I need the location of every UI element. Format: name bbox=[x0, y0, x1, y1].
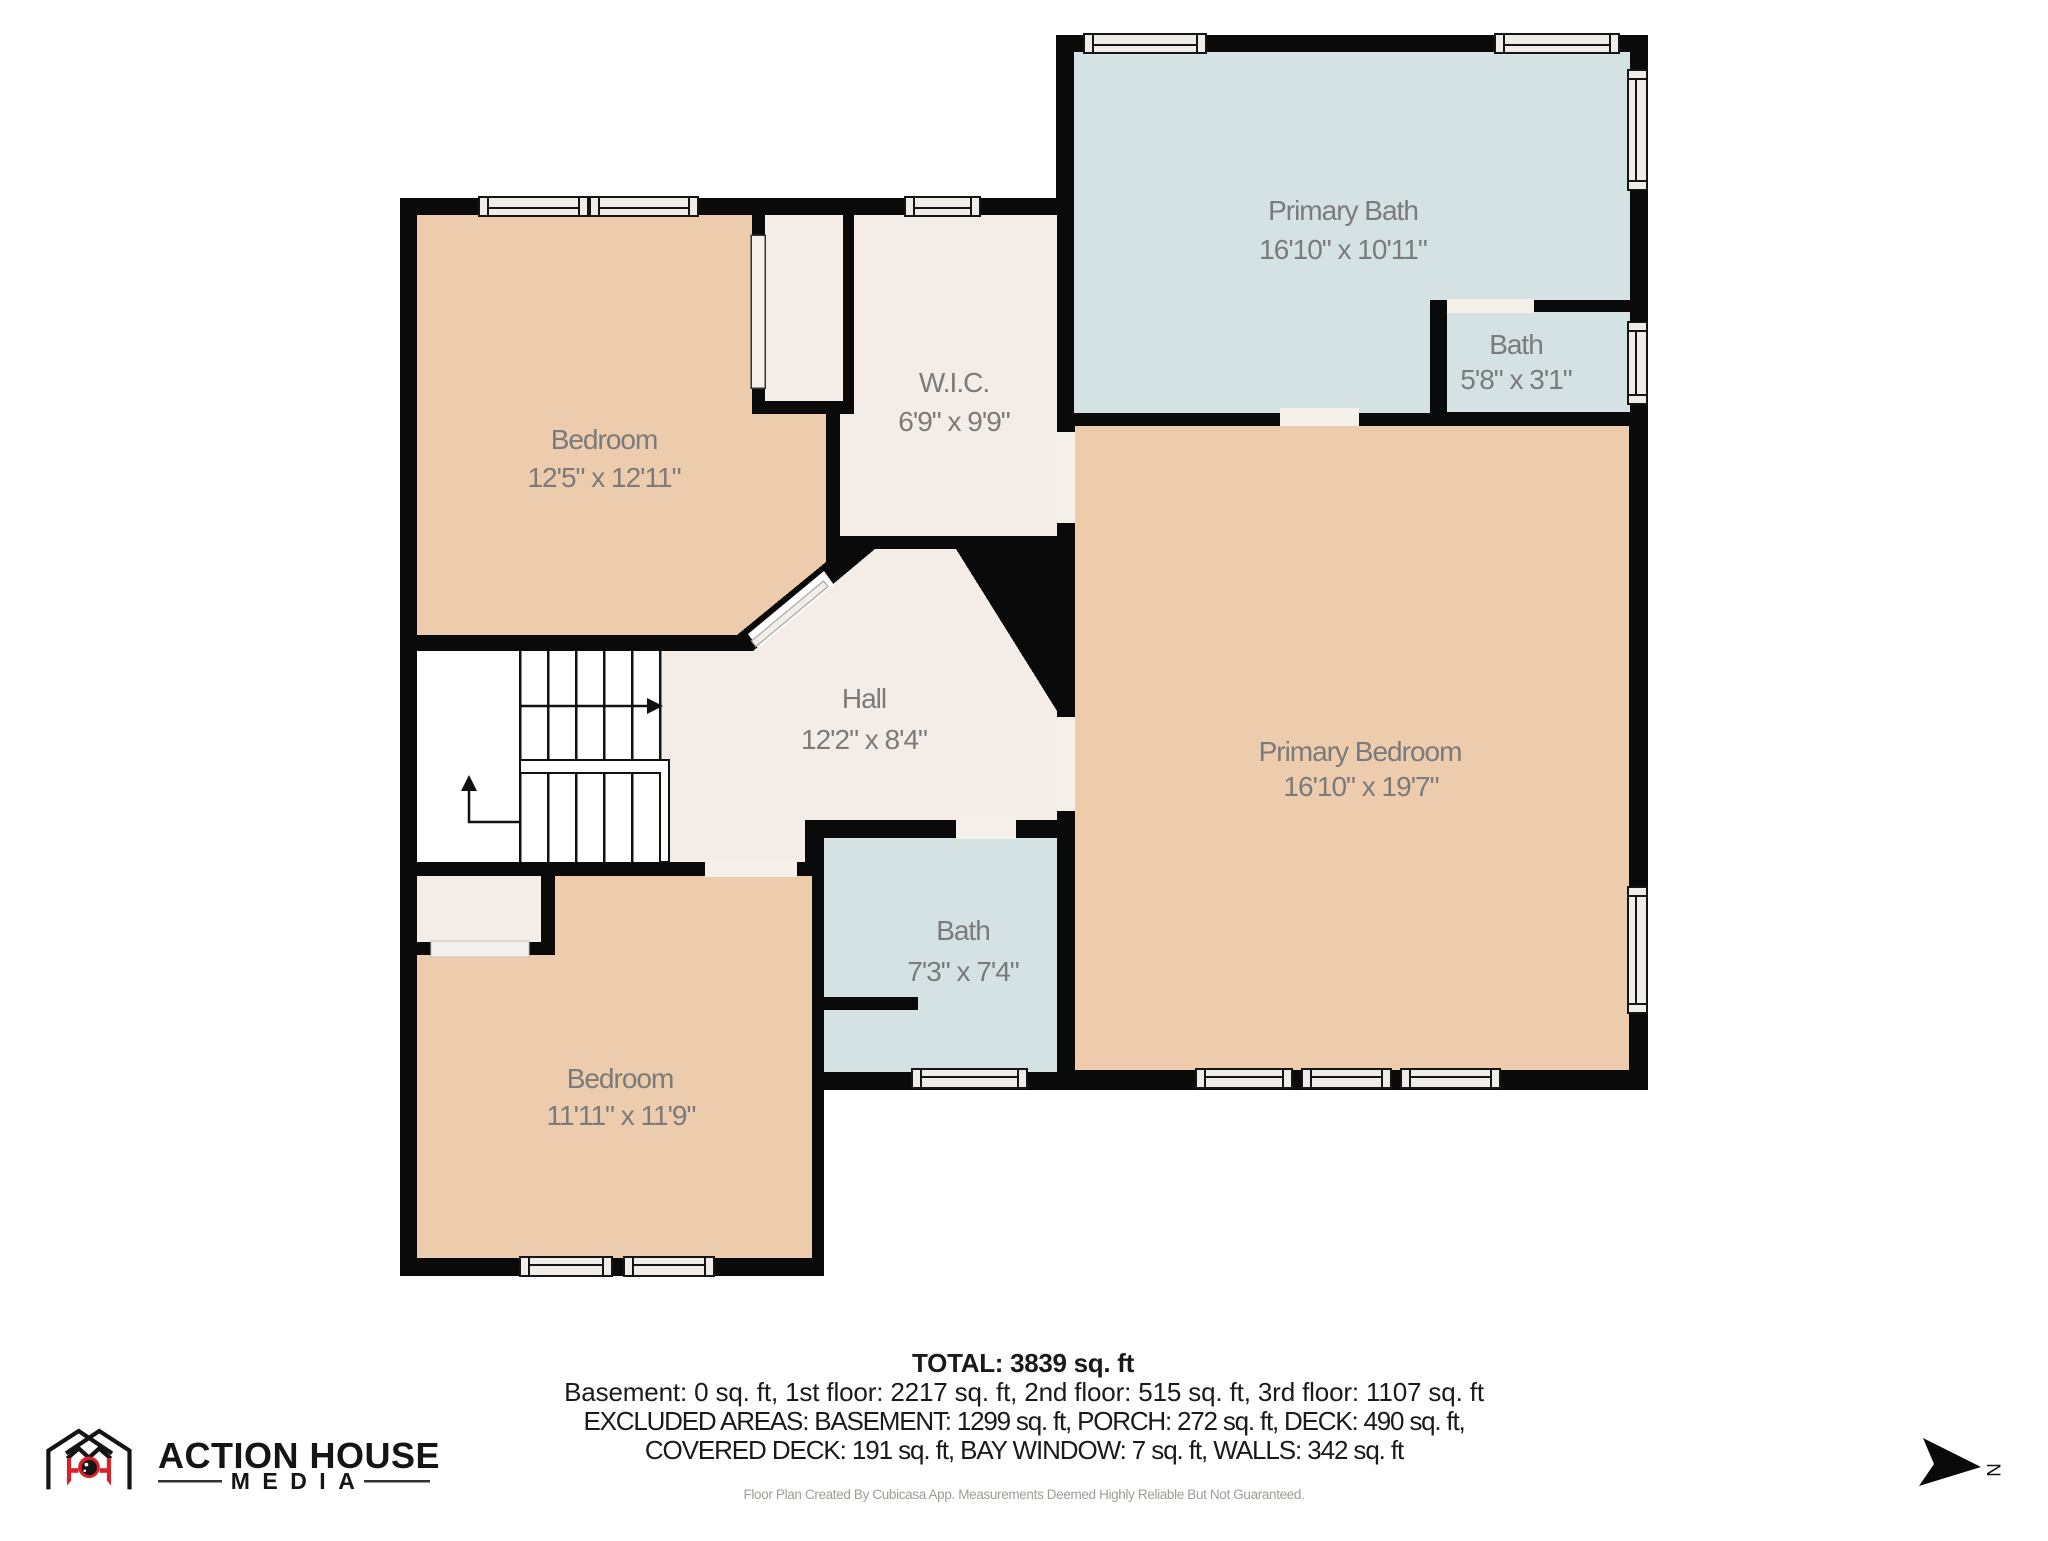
svg-text:Bedroom: Bedroom bbox=[567, 1063, 674, 1094]
svg-text:11'11" x 11'9": 11'11" x 11'9" bbox=[547, 1100, 696, 1131]
svg-text:16'10" x 19'7": 16'10" x 19'7" bbox=[1283, 771, 1438, 802]
svg-text:Bath: Bath bbox=[936, 915, 990, 946]
svg-text:7'3" x 7'4": 7'3" x 7'4" bbox=[907, 956, 1018, 987]
svg-text:16'10" x 10'11": 16'10" x 10'11" bbox=[1259, 234, 1427, 265]
svg-text:5'8" x 3'1": 5'8" x 3'1" bbox=[1460, 364, 1571, 395]
svg-text:12'5" x 12'11": 12'5" x 12'11" bbox=[527, 462, 680, 493]
svg-text:COVERED DECK: 191 sq. ft, BAY: COVERED DECK: 191 sq. ft, BAY WINDOW: 7 … bbox=[645, 1435, 1405, 1465]
svg-text:W.I.C.: W.I.C. bbox=[919, 367, 989, 398]
svg-text:Primary Bedroom: Primary Bedroom bbox=[1259, 736, 1462, 767]
svg-text:Bath: Bath bbox=[1489, 329, 1543, 360]
svg-text:Floor Plan Created By Cubicasa: Floor Plan Created By Cubicasa App. Meas… bbox=[744, 1487, 1305, 1502]
svg-text:6'9" x 9'9": 6'9" x 9'9" bbox=[898, 406, 1009, 437]
svg-text:MEDIA: MEDIA bbox=[231, 1468, 368, 1494]
svg-text:Primary Bath: Primary Bath bbox=[1268, 195, 1418, 226]
svg-text:Basement: 0 sq. ft, 1st floor:: Basement: 0 sq. ft, 1st floor: 2217 sq. … bbox=[564, 1377, 1485, 1407]
svg-text:Hall: Hall bbox=[842, 683, 886, 714]
svg-text:N: N bbox=[1982, 1463, 2003, 1477]
svg-text:TOTAL: 3839 sq. ft: TOTAL: 3839 sq. ft bbox=[912, 1348, 1135, 1378]
svg-text:Bedroom: Bedroom bbox=[551, 424, 658, 455]
svg-text:12'2" x 8'4": 12'2" x 8'4" bbox=[801, 724, 927, 755]
svg-text:EXCLUDED AREAS: BASEMENT: 1299: EXCLUDED AREAS: BASEMENT: 1299 sq. ft, P… bbox=[583, 1406, 1464, 1436]
